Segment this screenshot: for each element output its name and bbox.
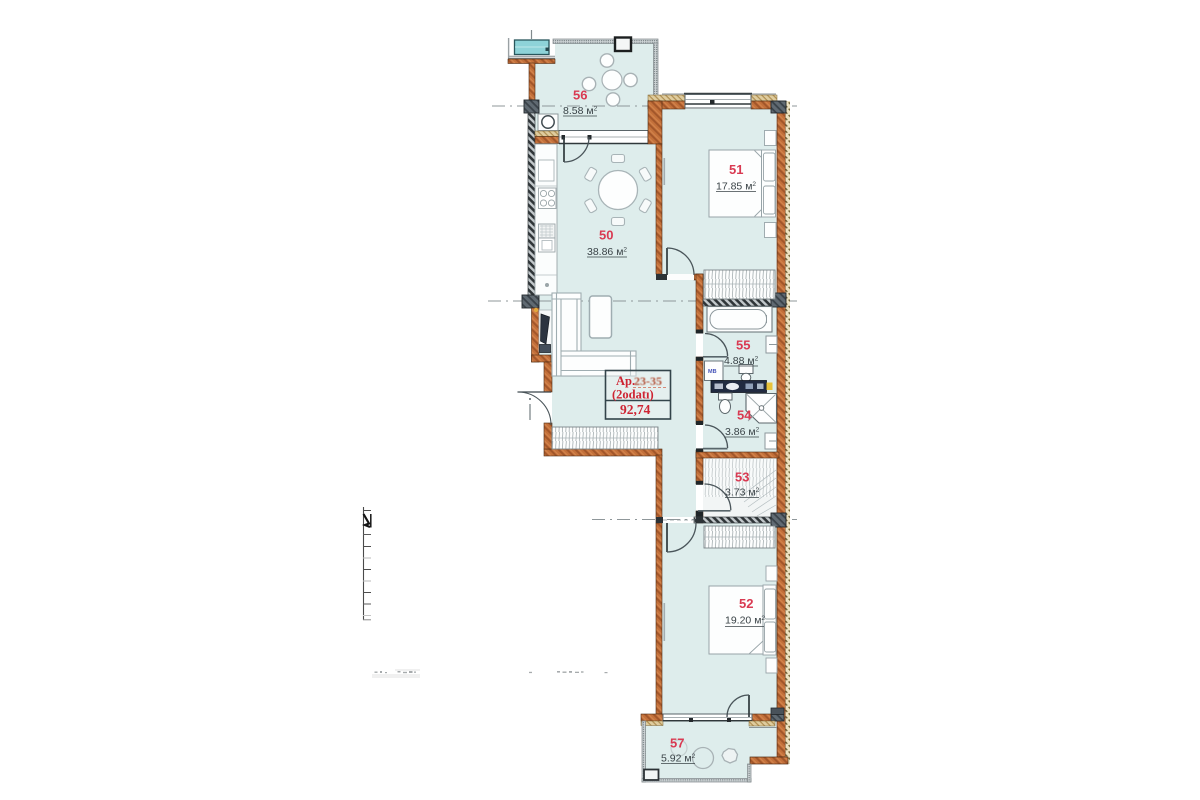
svg-text:(2odatı): (2odatı) xyxy=(612,388,654,402)
svg-text:3.73 м2: 3.73 м2 xyxy=(725,487,760,499)
svg-text:4.88 м2: 4.88 м2 xyxy=(724,355,759,367)
svg-text:52: 52 xyxy=(739,596,753,611)
svg-text:3.86 м2: 3.86 м2 xyxy=(725,426,760,438)
svg-text:55: 55 xyxy=(736,338,750,353)
svg-text:57: 57 xyxy=(670,736,684,751)
svg-text:23-35: 23-35 xyxy=(634,374,662,388)
svg-text:56: 56 xyxy=(573,88,587,103)
svg-text:Ap.: Ap. xyxy=(616,374,635,388)
svg-text:50: 50 xyxy=(599,228,613,243)
svg-text:92,74: 92,74 xyxy=(620,402,651,417)
svg-text:8.58 м2: 8.58 м2 xyxy=(563,105,598,117)
svg-text:51: 51 xyxy=(729,162,743,177)
svg-text:MB: MB xyxy=(708,369,717,375)
svg-text:54: 54 xyxy=(737,408,752,423)
svg-text:38.86 м2: 38.86 м2 xyxy=(587,246,627,258)
svg-text:17.85 м2: 17.85 м2 xyxy=(716,181,756,193)
svg-text:19.20 м2: 19.20 м2 xyxy=(725,615,765,627)
svg-text:53: 53 xyxy=(735,470,749,485)
svg-text:5.92 м2: 5.92 м2 xyxy=(661,753,696,765)
